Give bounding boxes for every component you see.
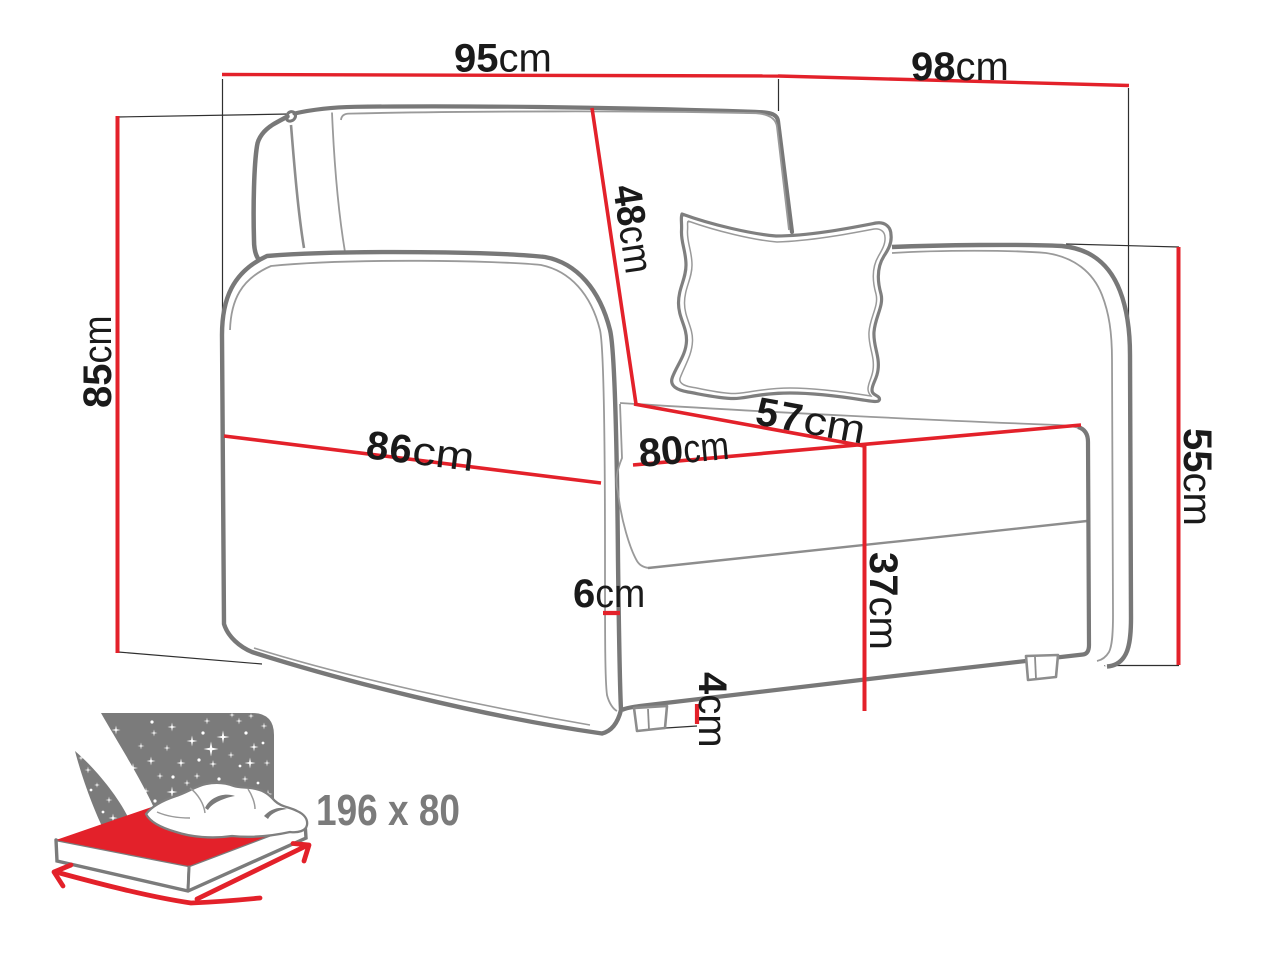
svg-text:98cm: 98cm [911, 45, 1009, 89]
svg-text:4cm: 4cm [690, 672, 734, 748]
svg-text:6cm: 6cm [573, 572, 645, 616]
svg-text:80cm: 80cm [637, 424, 731, 476]
svg-text:196 x 80: 196 x 80 [316, 786, 460, 835]
svg-text:95cm: 95cm [454, 37, 552, 81]
svg-text:55cm: 55cm [1175, 428, 1219, 526]
svg-text:85cm: 85cm [76, 316, 120, 409]
svg-text:37cm: 37cm [861, 552, 905, 650]
